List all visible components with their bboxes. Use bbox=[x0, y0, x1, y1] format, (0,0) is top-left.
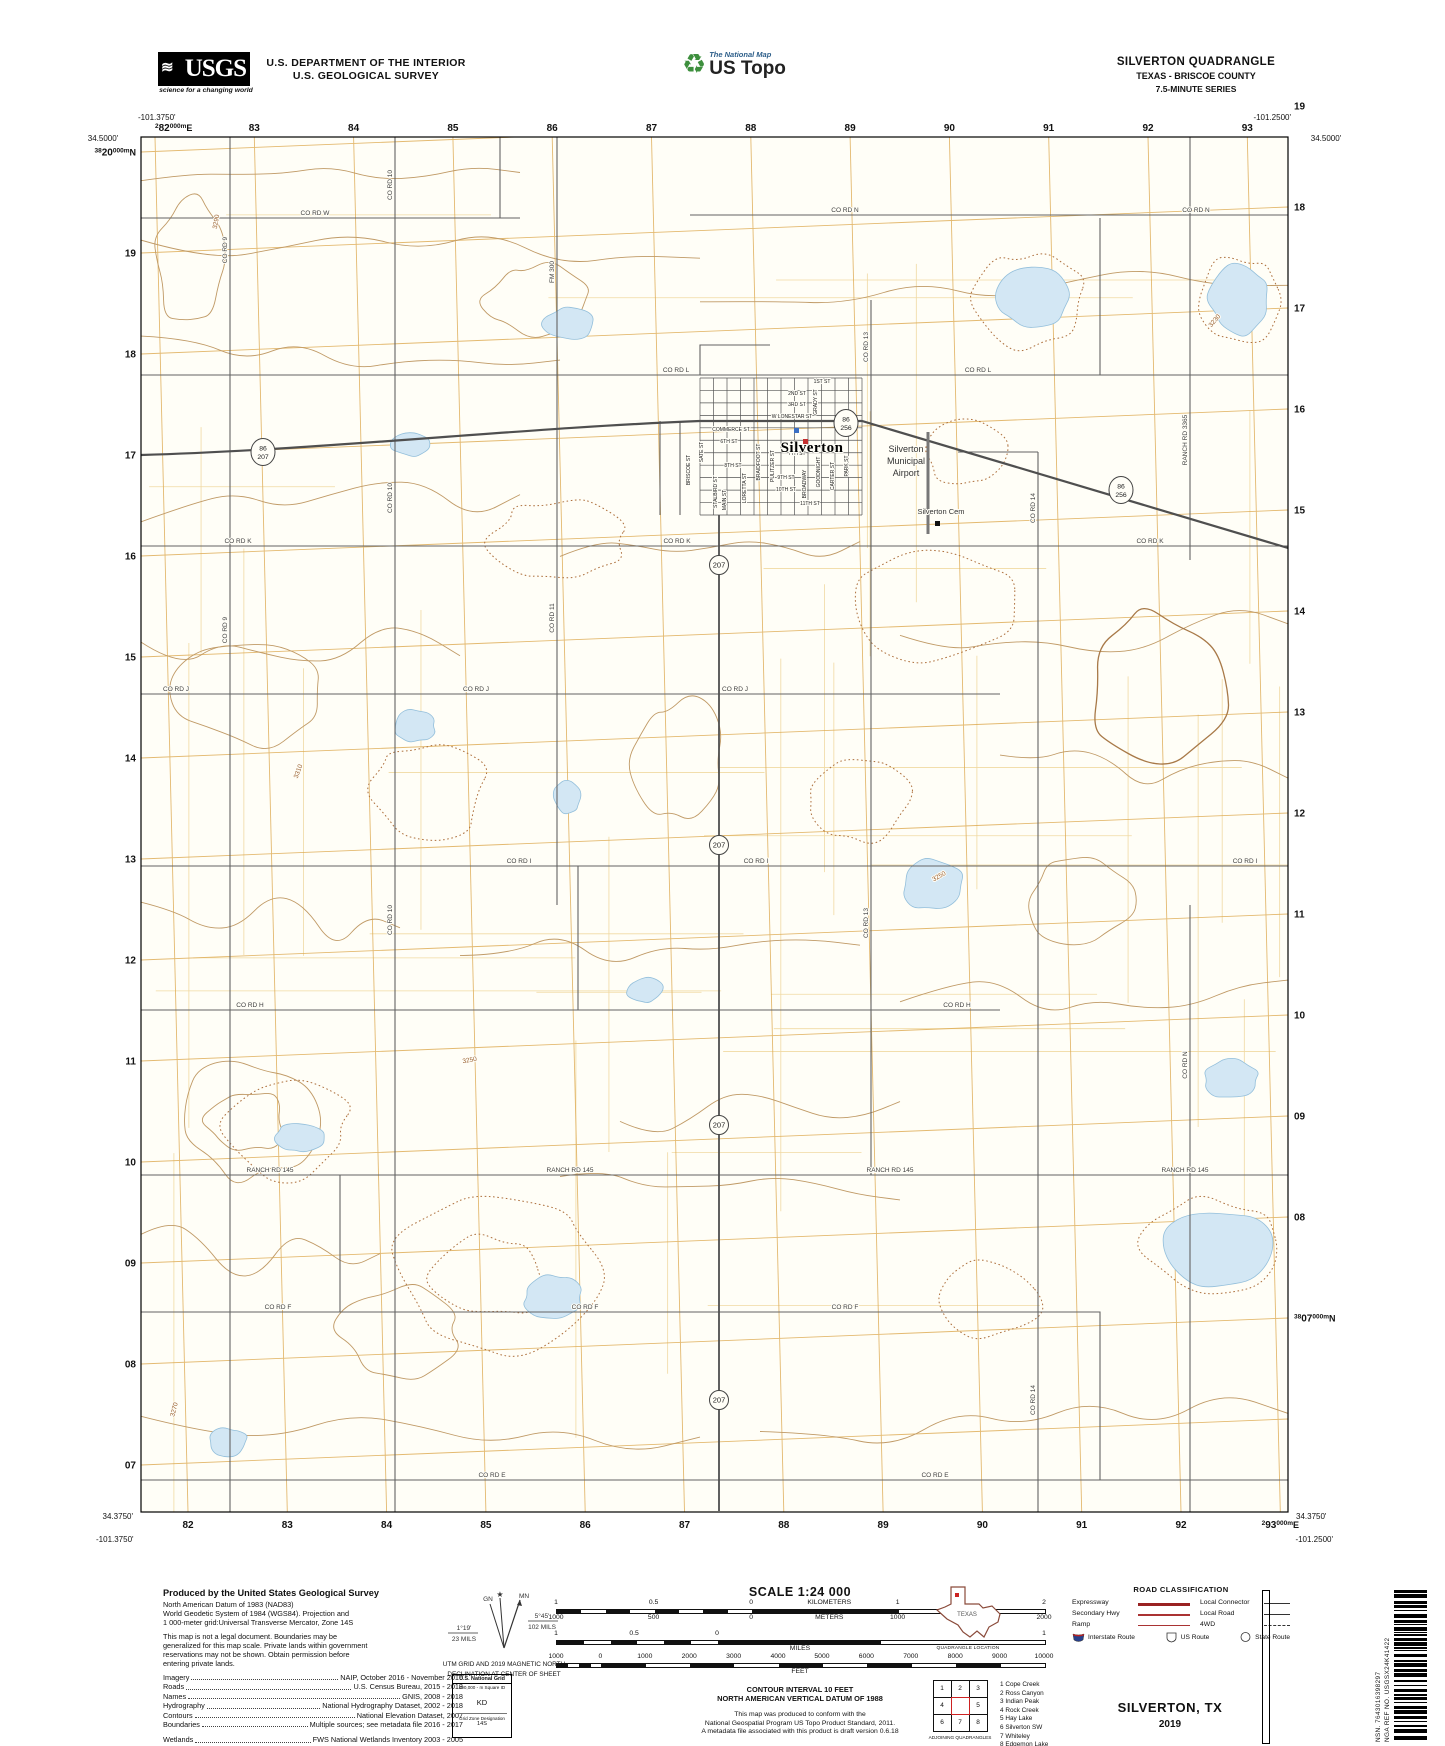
route-number: 207 bbox=[713, 561, 726, 570]
road-label: CO RD 13 bbox=[863, 332, 870, 362]
street-label: GOODNIGHT bbox=[816, 457, 822, 488]
route-shield-legend: US Route bbox=[1165, 1631, 1210, 1643]
magnetic-north-label: MN bbox=[519, 1593, 529, 1600]
grid-label: 19 bbox=[125, 249, 137, 260]
town-label: Silverton bbox=[781, 440, 844, 456]
production-notes: Produced by the United States Geological… bbox=[163, 1588, 463, 1745]
road-label: FM 300 bbox=[549, 261, 556, 283]
grid-label: 88 bbox=[778, 1520, 790, 1531]
topo-map: CO RD WCO RD NCO RD NCO RD LCO RD LCO RD… bbox=[0, 0, 1445, 1570]
street-label: 8TH ST bbox=[724, 463, 741, 469]
data-source-row: HydrographyNational Hydrography Dataset,… bbox=[163, 1701, 463, 1710]
route-number: 207 bbox=[713, 841, 726, 850]
street-label: 3RD ST bbox=[788, 402, 806, 408]
route-number: 207 bbox=[713, 1396, 726, 1405]
grid-label: 87 bbox=[646, 123, 658, 134]
usng-sub: 100,000 - m Square ID bbox=[453, 1684, 511, 1691]
gn-mils: 23 MILS bbox=[452, 1636, 477, 1643]
road-label: CO RD 14 bbox=[1030, 1385, 1037, 1415]
road-label: CO RD 10 bbox=[387, 170, 394, 200]
data-source-row: BoundariesMultiple sources; see metadata… bbox=[163, 1720, 463, 1729]
street-label: 1ST ST bbox=[814, 379, 831, 385]
adjoining-name: 7 Whiteley bbox=[1000, 1733, 1048, 1742]
road-label: CO RD W bbox=[301, 210, 331, 217]
grid-label: 92 bbox=[1142, 123, 1154, 134]
corner-coord: -101.2500' bbox=[1253, 113, 1291, 122]
street-label: PULITZER ST bbox=[770, 450, 776, 482]
road-class-row: Ramp4WD bbox=[1072, 1621, 1290, 1631]
street-label: 10TH ST bbox=[776, 487, 796, 493]
adjoining-cell: 6 bbox=[933, 1714, 952, 1732]
road-label: CO RD I bbox=[507, 858, 532, 865]
adjoining-cell: 3 bbox=[969, 1680, 988, 1698]
state-shield-icon bbox=[1239, 1631, 1252, 1643]
grid-north-label: GN bbox=[483, 1596, 493, 1603]
road-label: RANCH RD 145 bbox=[247, 1167, 294, 1174]
road-label: CO RD E bbox=[921, 1472, 949, 1479]
grid-label: 84 bbox=[348, 123, 360, 134]
route-number: 86 bbox=[259, 446, 267, 453]
corner-coord: 34.3750' bbox=[1296, 1512, 1327, 1521]
road-label: CO RD 11 bbox=[549, 603, 556, 633]
road-label: CO RD N bbox=[1182, 207, 1210, 214]
grid-label: 15 bbox=[125, 653, 137, 664]
street-label: COMMERCE ST bbox=[712, 427, 750, 433]
adjoining-cell: 1 bbox=[933, 1680, 952, 1698]
data-source-row: NamesGNIS, 2008 - 2018 bbox=[163, 1692, 463, 1701]
grid-label: 91 bbox=[1043, 123, 1055, 134]
datum-paragraph: North American Datum of 1983 (NAD83)Worl… bbox=[163, 1600, 463, 1627]
corner-coord: 34.5000' bbox=[1311, 134, 1342, 143]
road-label: CO RD I bbox=[1233, 858, 1258, 865]
adjoining-name: 2 Ross Canyon bbox=[1000, 1690, 1048, 1699]
road-label: CO RD 9 bbox=[222, 236, 229, 263]
street-label: 6TH ST bbox=[720, 439, 737, 445]
grid-label: 86 bbox=[580, 1520, 592, 1531]
true-north-star: ★ bbox=[496, 1590, 503, 1599]
road-class-row: ExpresswayLocal Connector bbox=[1072, 1599, 1290, 1609]
sheet-year: 2019 bbox=[1085, 1719, 1255, 1730]
grid-label: 11 bbox=[125, 1057, 136, 1068]
gn-degrees: 1°19' bbox=[457, 1624, 472, 1632]
grid-label: 15 bbox=[1294, 506, 1306, 517]
road-label: CO RD L bbox=[965, 367, 992, 374]
street-label: CARTER ST bbox=[830, 462, 836, 490]
road-label: RANCH RD 145 bbox=[547, 1167, 594, 1174]
street-label: MAIN ST bbox=[722, 490, 728, 510]
road-label: CO RD H bbox=[236, 1002, 264, 1009]
road-class-row: Secondary HwyLocal Road bbox=[1072, 1610, 1290, 1620]
street-label: PARK ST bbox=[844, 455, 850, 476]
adjoining-caption: ADJOINING QUADRANGLES bbox=[922, 1735, 998, 1740]
grid-label: 07 bbox=[125, 1461, 137, 1472]
barcode-stripes bbox=[1394, 1590, 1427, 1742]
grid-label: 13 bbox=[1294, 708, 1306, 719]
building-symbol bbox=[935, 521, 940, 526]
grid-label: 92 bbox=[1175, 1520, 1187, 1531]
road-label: CO RD 14 bbox=[1030, 493, 1037, 523]
grid-label: 91 bbox=[1076, 1520, 1088, 1531]
airport-label: Airport bbox=[893, 468, 920, 478]
nga-ref-label: NGA REF NO. USGSX24K41422 bbox=[1383, 1590, 1392, 1742]
barcode-block: NSN. 7643016398297 NGA REF NO. USGSX24K4… bbox=[1374, 1590, 1427, 1742]
street-label: SATE ST bbox=[699, 442, 705, 462]
road-label: CO RD 9 bbox=[222, 616, 229, 643]
grid-label: 88 bbox=[745, 123, 757, 134]
texas-outline: TEXAS bbox=[929, 1585, 1007, 1639]
grid-label: 293000mE bbox=[1262, 1520, 1299, 1531]
grid-label: 83 bbox=[282, 1520, 294, 1531]
sheet-title-block: SILVERTON, TX 2019 bbox=[1085, 1700, 1255, 1730]
road-label: CO RD J bbox=[722, 686, 748, 693]
grid-label: 282000mE bbox=[155, 123, 192, 134]
grid-label: 14 bbox=[125, 754, 137, 765]
road-label: CO RD I bbox=[744, 858, 769, 865]
usng-box: U.S. National Grid 100,000 - m Square ID… bbox=[452, 1674, 512, 1738]
adjoining-name: 4 Rock Creek bbox=[1000, 1707, 1048, 1716]
street-label: LORETTA ST bbox=[742, 473, 748, 503]
road-label: RANCH RD 145 bbox=[867, 1167, 914, 1174]
road-label: CO RD F bbox=[572, 1304, 599, 1311]
grid-label: 89 bbox=[878, 1520, 890, 1531]
scale-labels: 1000010002000300040005000600070008000900… bbox=[556, 1653, 1044, 1662]
usng-zone: 14S bbox=[453, 1721, 511, 1727]
route-number: 86 bbox=[842, 417, 850, 424]
adjoining-names: 1 Cope Creek2 Ross Canyon3 Indian Peak4 … bbox=[1000, 1681, 1048, 1746]
grid-label: 87 bbox=[679, 1520, 691, 1531]
road-classification: ROAD CLASSIFICATION ExpresswayLocal Conn… bbox=[1072, 1585, 1290, 1594]
building-symbol bbox=[794, 428, 799, 433]
road-label: RANCH RD 145 bbox=[1162, 1167, 1209, 1174]
grid-label: 09 bbox=[1294, 1112, 1306, 1123]
grid-label: 13 bbox=[125, 855, 137, 866]
grid-label: 93 bbox=[1242, 123, 1254, 134]
road-label: CO RD H bbox=[943, 1002, 971, 1009]
street-label: 2ND ST bbox=[788, 391, 806, 397]
data-source-row: ContoursNational Elevation Dataset, 2007 bbox=[163, 1711, 463, 1720]
grid-label: 90 bbox=[944, 123, 956, 134]
road-label: CO RD J bbox=[463, 686, 489, 693]
grid-label: 12 bbox=[125, 956, 137, 967]
adjoining-grid: 12345678 bbox=[933, 1680, 987, 1731]
road-label: CO RD F bbox=[832, 1304, 859, 1311]
grid-label: 16 bbox=[1294, 405, 1306, 416]
adjoining-cell: 2 bbox=[951, 1680, 970, 1698]
street-label: BRISCOE ST bbox=[686, 455, 692, 485]
road-label: RANCH RD 3365 bbox=[1182, 414, 1189, 465]
grid-label: 16 bbox=[125, 552, 137, 563]
grid-label: 12 bbox=[1294, 809, 1306, 820]
street-label: GRADY ST bbox=[813, 389, 819, 414]
road-label: CO RD E bbox=[478, 1472, 506, 1479]
adjoining-cell: 4 bbox=[933, 1697, 952, 1715]
road-class-title: ROAD CLASSIFICATION bbox=[1072, 1585, 1290, 1594]
road-label: CO RD J bbox=[163, 686, 189, 693]
mn-degrees: 5°45' bbox=[535, 1612, 550, 1620]
street-label: BROADWAY bbox=[802, 469, 808, 498]
adjoining-name: 5 Hay Lake bbox=[1000, 1715, 1048, 1724]
road-label: CO RD L bbox=[663, 367, 690, 374]
legal-paragraph: This map is not a legal document. Bounda… bbox=[163, 1632, 463, 1668]
us-shield-icon bbox=[1165, 1631, 1178, 1643]
quad-location-dot bbox=[955, 1593, 959, 1597]
route-shield-legend: Interstate Route bbox=[1072, 1631, 1135, 1643]
adjoining-name: 1 Cope Creek bbox=[1000, 1681, 1048, 1690]
road-label: CO RD 13 bbox=[863, 908, 870, 938]
grid-label: 3807000mN bbox=[1294, 1314, 1335, 1325]
grid-label: 17 bbox=[125, 451, 137, 462]
usng-zone-label: Grid Zone Designation bbox=[457, 1713, 507, 1721]
sheet-title: SILVERTON, TX bbox=[1085, 1700, 1255, 1715]
road-label: CO RD F bbox=[265, 1304, 292, 1311]
grid-label: 85 bbox=[447, 123, 459, 134]
road-label: CO RD K bbox=[1136, 538, 1164, 545]
adjoining-cell: 8 bbox=[969, 1714, 988, 1732]
grid-label: 08 bbox=[125, 1360, 137, 1371]
route-number: 207 bbox=[257, 454, 269, 461]
grid-label: 17 bbox=[1294, 304, 1306, 315]
mn-mils: 102 MILS bbox=[528, 1624, 556, 1631]
corner-coord: -101.3750' bbox=[96, 1535, 134, 1544]
corner-coord: -101.3750' bbox=[138, 113, 176, 122]
corner-coord: 34.5000' bbox=[88, 134, 119, 143]
grid-label: 82 bbox=[182, 1520, 194, 1531]
road-label: CO RD N bbox=[831, 207, 859, 214]
grid-label: 14 bbox=[1294, 607, 1306, 618]
street-label: W LONESTAR ST bbox=[772, 414, 812, 420]
road-class-shields: Interstate RouteUS RouteState Route bbox=[1072, 1631, 1290, 1643]
road-label: CO RD N bbox=[1182, 1051, 1189, 1079]
produced-by-title: Produced by the United States Geological… bbox=[163, 1588, 463, 1598]
street-label: 9TH ST bbox=[777, 475, 794, 481]
road-label: CO RD K bbox=[663, 538, 691, 545]
grid-label: 86 bbox=[547, 123, 559, 134]
grid-label: 10 bbox=[1294, 1011, 1306, 1022]
grid-label: 08 bbox=[1294, 1213, 1306, 1224]
street-label: BRAIDFOOT ST bbox=[756, 444, 762, 481]
adjoining-name: 3 Indian Peak bbox=[1000, 1698, 1048, 1707]
interstate-shield-icon bbox=[1072, 1631, 1085, 1643]
adjoining-name: 6 Silverton SW bbox=[1000, 1724, 1048, 1733]
road-label: CO RD 10 bbox=[387, 905, 394, 935]
road-label: CO RD 10 bbox=[387, 483, 394, 513]
grid-label: 18 bbox=[1294, 203, 1306, 214]
registration-box bbox=[1262, 1590, 1270, 1744]
grid-label: 11 bbox=[1294, 910, 1305, 921]
data-source-row: RoadsU.S. Census Bureau, 2015 - 2018 bbox=[163, 1682, 463, 1691]
airport-label: Municipal bbox=[887, 456, 925, 466]
adjoining-cell: 7 bbox=[951, 1714, 970, 1732]
grid-label: 09 bbox=[125, 1259, 137, 1270]
texas-label: TEXAS bbox=[957, 1612, 977, 1618]
usng-title: U.S. National Grid bbox=[453, 1675, 511, 1684]
grid-label: 85 bbox=[480, 1520, 492, 1531]
adjoining-cell-current bbox=[951, 1697, 970, 1715]
route-number: 256 bbox=[1115, 492, 1127, 499]
route-number: 256 bbox=[840, 425, 852, 432]
nsn-label: NSN. 7643016398297 bbox=[1374, 1590, 1383, 1742]
state-inset: TEXAS QUADRANGLE LOCATION bbox=[928, 1585, 1008, 1651]
street-label: STALBIRD ST bbox=[713, 476, 719, 508]
street-label: 11TH ST bbox=[800, 501, 820, 507]
adjoining-name: 8 Edgemon Lake bbox=[1000, 1741, 1048, 1746]
road-label: CO RD K bbox=[224, 538, 252, 545]
map-sheet: ≋ USGS science for a changing world U.S.… bbox=[0, 0, 1445, 1746]
data-source-row: WetlandsFWS National Wetlands Inventory … bbox=[163, 1735, 463, 1744]
adjoining-cell: 5 bbox=[969, 1697, 988, 1715]
quadrangle-location-caption: QUADRANGLE LOCATION bbox=[928, 1646, 1008, 1651]
data-sources-list: ImageryNAIP, October 2016 - November 201… bbox=[163, 1673, 463, 1745]
grid-label: 89 bbox=[845, 123, 857, 134]
data-source-row: ImageryNAIP, October 2016 - November 201… bbox=[163, 1673, 463, 1682]
grid-label: 84 bbox=[381, 1520, 393, 1531]
grid-label: 90 bbox=[977, 1520, 989, 1531]
grid-label: 19 bbox=[1294, 102, 1306, 113]
corner-coord: -101.2500' bbox=[1295, 1535, 1333, 1544]
cemetery-label: Silverton Cem bbox=[917, 507, 964, 516]
grid-label: 18 bbox=[125, 350, 137, 361]
route-number: 207 bbox=[713, 1121, 726, 1130]
corner-coord: 34.3750' bbox=[103, 1512, 134, 1521]
grid-label: 10 bbox=[125, 1158, 137, 1169]
usng-square-id: KD bbox=[453, 1691, 511, 1713]
route-number: 86 bbox=[1117, 484, 1125, 491]
airport-label: Silverton bbox=[888, 444, 923, 454]
scale-unit-label: FEET bbox=[556, 1668, 1044, 1675]
grid-label: 83 bbox=[249, 123, 261, 134]
grid-label: 3820000mN bbox=[95, 148, 136, 159]
